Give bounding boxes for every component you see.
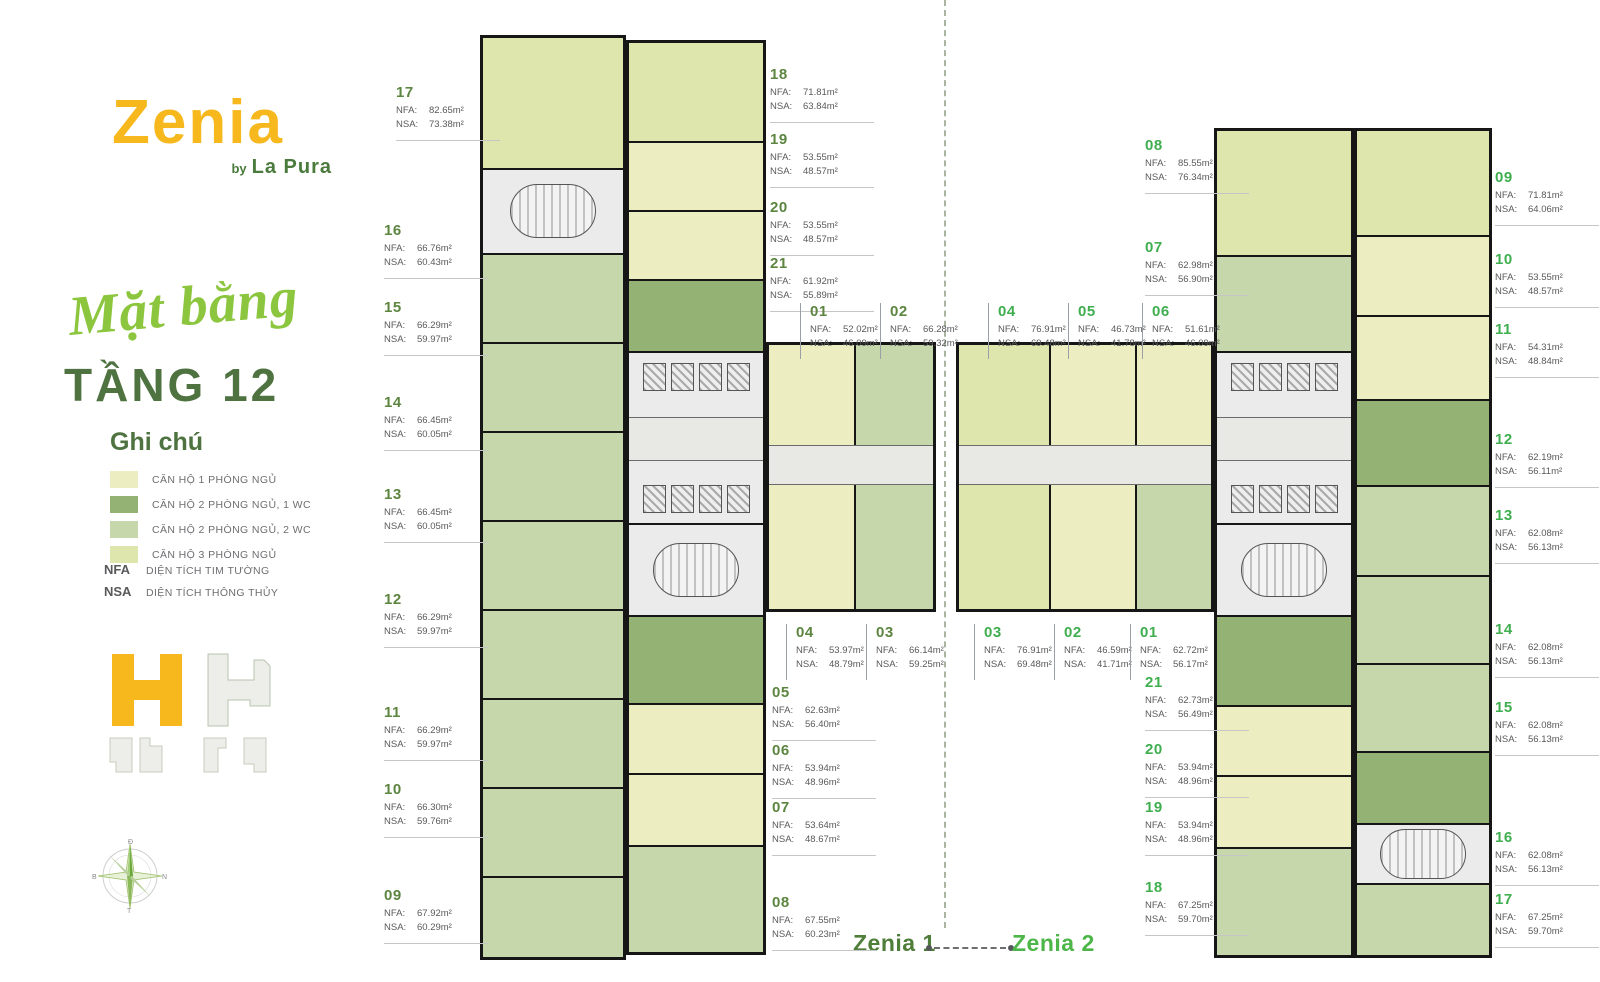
unit-nfa-row: NFA:66.76m² <box>384 242 488 256</box>
unit-nfa-row: NFA:62.72m² <box>1140 644 1224 658</box>
plan-unit-z1-14 <box>483 431 623 520</box>
zenia1-corridor <box>769 445 933 485</box>
unit-nsa-row: NSA:60.05m² <box>384 520 488 534</box>
zenia1-outer-core <box>483 168 623 253</box>
unit-number: 12 <box>1495 431 1599 448</box>
unit-number: 07 <box>1145 239 1249 256</box>
plan-unit-z1-16 <box>483 253 623 342</box>
unit-nsa-row: NSA:59.97m² <box>384 333 488 347</box>
unit-label-z2-13: 13NFA:62.08m²NSA:56.13m² <box>1495 507 1599 564</box>
unit-label-z1-19: 19NFA:53.55m²NSA:48.57m² <box>770 131 874 188</box>
svg-text:Đ: Đ <box>128 839 133 846</box>
unit-nfa-row: NFA:66.45m² <box>384 506 488 520</box>
plan-unit-z2-09 <box>1357 131 1489 235</box>
unit-number: 06 <box>1152 303 1236 320</box>
unit-label-z1-13: 13NFA:66.45m²NSA:60.05m² <box>384 486 488 543</box>
unit-nfa-row: NFA:66.29m² <box>384 611 488 625</box>
unit-label-z1-20: 20NFA:53.55m²NSA:48.57m² <box>770 199 874 256</box>
abbreviation-key: NFA DIỆN TÍCH TIM TƯỜNG NSA DIỆN TÍCH TH… <box>104 562 278 606</box>
plan-unit-z1-01 <box>769 345 854 445</box>
lift-icon <box>1315 363 1338 391</box>
plan-unit-z2-02 <box>1049 485 1135 609</box>
legend-item-1pn: CĂN HỘ 1 PHÒNG NGỦ <box>110 471 380 488</box>
zenia2-corridor <box>959 445 1211 485</box>
brand-name: Zenia <box>112 92 332 154</box>
plan-unit-z2-03 <box>959 485 1049 609</box>
unit-nfa-row: NFA:71.81m² <box>1495 189 1599 203</box>
plan-unit-z1-11 <box>483 698 623 787</box>
unit-number: 05 <box>772 684 876 701</box>
unit-number: 11 <box>384 704 488 721</box>
unit-nsa-row: NSA:56.40m² <box>772 718 876 732</box>
lift-icon <box>643 485 666 513</box>
unit-number: 06 <box>772 742 876 759</box>
unit-nsa-row: NSA:48.96m² <box>1145 833 1249 847</box>
site-block-b <box>204 738 266 772</box>
zenia2-stair-core <box>1217 523 1351 615</box>
unit-nfa-row: NFA:53.55m² <box>770 219 874 233</box>
core-corridor <box>1217 417 1351 461</box>
unit-nsa-row: NSA:59.32m² <box>890 337 974 351</box>
svg-text:B: B <box>92 874 97 881</box>
site-block-a <box>110 738 162 772</box>
plan-unit-z2-05 <box>1049 345 1135 445</box>
unit-nfa-row: NFA:53.64m² <box>772 819 876 833</box>
lift-icon <box>643 363 666 391</box>
core-corridor <box>629 417 763 461</box>
plan-unit-z2-10 <box>1357 235 1489 315</box>
unit-label-z2-16: 16NFA:62.08m²NSA:56.13m² <box>1495 829 1599 886</box>
plan-unit-z1-15 <box>483 342 623 431</box>
unit-nsa-row: NSA:59.76m² <box>384 815 488 829</box>
lift-icon <box>1259 485 1282 513</box>
unit-nsa-row: NSA:55.89m² <box>770 289 874 303</box>
lift-icon <box>671 363 694 391</box>
unit-label-z1-05: 05NFA:62.63m²NSA:56.40m² <box>772 684 876 741</box>
unit-number: 07 <box>772 799 876 816</box>
unit-nsa-row: NSA:56.13m² <box>1495 733 1599 747</box>
zenia1-connector <box>766 342 936 612</box>
unit-label-z1-12: 12NFA:66.29m²NSA:59.97m² <box>384 591 488 648</box>
unit-label-z2-10: 10NFA:53.55m²NSA:48.57m² <box>1495 251 1599 308</box>
site-keyplan-graphic <box>104 650 294 780</box>
unit-nsa-row: NSA:56.13m² <box>1495 863 1599 877</box>
tower-h-outline <box>208 654 270 726</box>
unit-number: 15 <box>1495 699 1599 716</box>
unit-number: 17 <box>1495 891 1599 908</box>
zenia1-lift-core <box>629 351 763 523</box>
plan-unit-z2-12 <box>1357 399 1489 485</box>
unit-nfa-row: NFA:62.63m² <box>772 704 876 718</box>
unit-number: 20 <box>770 199 874 216</box>
zenia1-outer-wing <box>480 35 626 960</box>
unit-number: 18 <box>1145 879 1249 896</box>
unit-label-z2-18: 18NFA:67.25m²NSA:59.70m² <box>1145 879 1249 936</box>
plan-unit-z1-07 <box>629 773 763 845</box>
unit-number: 09 <box>384 887 488 904</box>
zenia1-inner-wing <box>626 40 766 955</box>
unit-nsa-row: NSA:48.57m² <box>770 233 874 247</box>
unit-nsa-row: NSA:46.09m² <box>1152 337 1236 351</box>
plan-unit-z2-14 <box>1357 575 1489 663</box>
unit-nfa-row: NFA:66.14m² <box>876 644 960 658</box>
unit-nsa-row: NSA:48.84m² <box>1495 355 1599 369</box>
unit-nsa-row: NSA:56.17m² <box>1140 658 1224 672</box>
unit-number: 11 <box>1495 321 1599 338</box>
unit-label-z2-06: 06NFA:51.61m²NSA:46.09m² <box>1142 303 1236 359</box>
unit-label-z1-14: 14NFA:66.45m²NSA:60.05m² <box>384 394 488 451</box>
unit-nfa-row: NFA:71.81m² <box>770 86 874 100</box>
plan-unit-z1-05 <box>629 615 763 703</box>
unit-number: 14 <box>384 394 488 411</box>
unit-number: 10 <box>384 781 488 798</box>
unit-nsa-row: NSA:56.13m² <box>1495 541 1599 555</box>
unit-number: 03 <box>876 624 960 641</box>
unit-number: 18 <box>770 66 874 83</box>
brand-logo: Zenia byLa Pura <box>112 92 332 179</box>
unit-number: 01 <box>1140 624 1224 641</box>
unit-label-z2-20: 20NFA:53.94m²NSA:48.96m² <box>1145 741 1249 798</box>
lift-bank <box>629 363 763 391</box>
unit-nfa-row: NFA:53.55m² <box>770 151 874 165</box>
unit-nfa-row: NFA:67.55m² <box>772 914 876 928</box>
stairs <box>1380 829 1466 879</box>
lift-icon <box>1231 485 1254 513</box>
unit-label-z2-12: 12NFA:62.19m²NSA:56.11m² <box>1495 431 1599 488</box>
unit-nfa-row: NFA:66.29m² <box>384 319 488 333</box>
unit-nsa-row: NSA:60.29m² <box>384 921 488 935</box>
unit-nsa-row: NSA:48.96m² <box>772 776 876 790</box>
unit-nfa-row: NFA:62.08m² <box>1495 641 1599 655</box>
legend-title: Ghi chú <box>110 428 380 457</box>
plan-unit-z1-03 <box>854 485 933 609</box>
plan-unit-z1-06 <box>629 703 763 773</box>
unit-number: 15 <box>384 299 488 316</box>
zenia2-connector <box>956 342 1214 612</box>
unit-label-z2-21: 21NFA:62.73m²NSA:56.49m² <box>1145 674 1249 731</box>
unit-nfa-row: NFA:53.55m² <box>1495 271 1599 285</box>
abbr-nfa: NFA DIỆN TÍCH TIM TƯỜNG <box>104 562 278 577</box>
plan-unit-z2-11 <box>1357 315 1489 399</box>
unit-nfa-row: NFA:66.30m² <box>384 801 488 815</box>
unit-label-z1-11: 11NFA:66.29m²NSA:59.97m² <box>384 704 488 761</box>
legend-swatch-2pn1wc <box>110 496 138 513</box>
plan-unit-z1-02 <box>854 345 933 445</box>
unit-label-z1-06: 06NFA:53.94m²NSA:48.96m² <box>772 742 876 799</box>
unit-number: 10 <box>1495 251 1599 268</box>
unit-label-z1-09: 09NFA:67.92m²NSA:60.29m² <box>384 887 488 944</box>
lift-bank <box>1217 485 1351 513</box>
lift-icon <box>727 363 750 391</box>
unit-number: 13 <box>1495 507 1599 524</box>
svg-text:T: T <box>127 908 132 914</box>
unit-label-z2-01: 01NFA:62.72m²NSA:56.17m² <box>1130 624 1224 680</box>
lift-icon <box>1287 485 1310 513</box>
lift-icon <box>1315 485 1338 513</box>
unit-nfa-row: NFA:54.31m² <box>1495 341 1599 355</box>
unit-label-z1-16: 16NFA:66.76m²NSA:60.43m² <box>384 222 488 279</box>
unit-label-z1-07: 07NFA:53.64m²NSA:48.67m² <box>772 799 876 856</box>
footer-tower-right-label: Zenia 2 <box>1012 930 1095 957</box>
plan-unit-z2-01 <box>1135 485 1211 609</box>
unit-nfa-row: NFA:67.25m² <box>1495 911 1599 925</box>
plan-unit-z2-17 <box>1357 883 1489 955</box>
unit-nsa-row: NSA:59.97m² <box>384 738 488 752</box>
unit-number: 14 <box>1495 621 1599 638</box>
zenia2-outer-core <box>1357 823 1489 883</box>
unit-nsa-row: NSA:56.13m² <box>1495 655 1599 669</box>
unit-number: 16 <box>1495 829 1599 846</box>
unit-number: 08 <box>1145 137 1249 154</box>
floorplan-page: Zenia byLa Pura Mặt bằng TẦNG 12 Ghi chú… <box>0 0 1600 982</box>
unit-label-z2-08: 08NFA:85.55m²NSA:76.34m² <box>1145 137 1249 194</box>
legend-swatch-2pn2wc <box>110 521 138 538</box>
unit-label-z1-03: 03NFA:66.14m²NSA:59.25m² <box>866 624 960 680</box>
unit-number: 09 <box>1495 169 1599 186</box>
plan-unit-z1-10 <box>483 787 623 876</box>
plan-unit-z1-19 <box>629 141 763 210</box>
unit-nfa-row: NFA:67.25m² <box>1145 899 1249 913</box>
lift-icon <box>699 363 722 391</box>
plan-unit-z1-18 <box>629 43 763 141</box>
legend-swatch-1pn <box>110 471 138 488</box>
unit-label-z2-11: 11NFA:54.31m²NSA:48.84m² <box>1495 321 1599 378</box>
lift-bank <box>1217 363 1351 391</box>
lift-icon <box>671 485 694 513</box>
unit-label-z1-15: 15NFA:66.29m²NSA:59.97m² <box>384 299 488 356</box>
unit-nsa-row: NSA:64.06m² <box>1495 203 1599 217</box>
unit-label-z1-18: 18NFA:71.81m²NSA:63.84m² <box>770 66 874 123</box>
unit-nsa-row: NSA:60.23m² <box>772 928 876 942</box>
unit-label-z2-14: 14NFA:62.08m²NSA:56.13m² <box>1495 621 1599 678</box>
unit-label-z1-10: 10NFA:66.30m²NSA:59.76m² <box>384 781 488 838</box>
tower-h-highlighted <box>112 654 182 726</box>
plan-unit-z2-15 <box>1357 663 1489 751</box>
unit-label-z2-19: 19NFA:53.94m²NSA:48.96m² <box>1145 799 1249 856</box>
unit-nfa-row: NFA:62.08m² <box>1495 719 1599 733</box>
plan-unit-z1-09 <box>483 876 623 957</box>
unit-nsa-row: NSA:59.25m² <box>876 658 960 672</box>
footer-divider-dash <box>934 947 1006 949</box>
plan-unit-z2-13 <box>1357 485 1489 575</box>
unit-nsa-row: NSA:60.05m² <box>384 428 488 442</box>
legend: Ghi chú CĂN HỘ 1 PHÒNG NGỦ CĂN HỘ 2 PHÒN… <box>110 428 380 571</box>
unit-nfa-row: NFA:53.94m² <box>1145 819 1249 833</box>
unit-nfa-row: NFA:66.45m² <box>384 414 488 428</box>
unit-nfa-row: NFA:66.29m² <box>384 724 488 738</box>
brand-byline: byLa Pura <box>112 156 332 179</box>
zenia2-lift-core <box>1217 351 1351 523</box>
unit-nsa-row: NSA:48.57m² <box>1495 285 1599 299</box>
stairs <box>653 543 739 597</box>
compass: Đ N T B <box>92 838 168 919</box>
unit-nfa-row: NFA:62.73m² <box>1145 694 1249 708</box>
plan-unit-z1-21 <box>629 279 763 351</box>
unit-nfa-row: NFA:82.65m² <box>396 104 500 118</box>
lift-icon <box>699 485 722 513</box>
abbr-nsa: NSA DIỆN TÍCH THÔNG THỦY <box>104 584 278 599</box>
stairs <box>510 184 596 238</box>
unit-nfa-row: NFA:61.92m² <box>770 275 874 289</box>
zenia2-outer-wing <box>1354 128 1492 958</box>
page-title-floor: TẦNG 12 <box>64 358 279 412</box>
unit-nfa-row: NFA:67.92m² <box>384 907 488 921</box>
unit-number: 21 <box>770 255 874 272</box>
page-title-script: Mặt bằng <box>66 259 370 349</box>
unit-nsa-row: NSA:59.70m² <box>1145 913 1249 927</box>
unit-number: 19 <box>770 131 874 148</box>
unit-label-z2-07: 07NFA:62.98m²NSA:56.90m² <box>1145 239 1249 296</box>
unit-nsa-row: NSA:60.43m² <box>384 256 488 270</box>
unit-nfa-row: NFA:53.94m² <box>1145 761 1249 775</box>
legend-item-3pn: CĂN HỘ 3 PHÒNG NGỦ <box>110 546 380 563</box>
unit-label-z1-17: 17NFA:82.65m²NSA:73.38m² <box>396 84 500 141</box>
lift-bank <box>629 485 763 513</box>
unit-nsa-row: NSA:59.97m² <box>384 625 488 639</box>
unit-nsa-row: NSA:56.49m² <box>1145 708 1249 722</box>
plan-unit-z1-08 <box>629 845 763 952</box>
plan-unit-z1-04 <box>769 485 854 609</box>
unit-nsa-row: NSA:56.90m² <box>1145 273 1249 287</box>
svg-text:N: N <box>162 874 167 881</box>
tower-divider-line <box>944 0 946 928</box>
unit-number: 19 <box>1145 799 1249 816</box>
unit-nsa-row: NSA:48.96m² <box>1145 775 1249 789</box>
unit-nfa-row: NFA:66.28m² <box>890 323 974 337</box>
stairs <box>1241 543 1327 597</box>
unit-nsa-row: NSA:56.11m² <box>1495 465 1599 479</box>
unit-number: 12 <box>384 591 488 608</box>
unit-nsa-row: NSA:73.38m² <box>396 118 500 132</box>
unit-nfa-row: NFA:62.19m² <box>1495 451 1599 465</box>
unit-nsa-row: NSA:48.57m² <box>770 165 874 179</box>
unit-label-z1-08: 08NFA:67.55m²NSA:60.23m² <box>772 894 876 951</box>
lift-icon <box>1259 363 1282 391</box>
legend-item-2pn1wc: CĂN HỘ 2 PHÒNG NGỦ, 1 WC <box>110 496 380 513</box>
unit-nsa-row: NSA:48.67m² <box>772 833 876 847</box>
unit-nfa-row: NFA:51.61m² <box>1152 323 1236 337</box>
legend-swatch-3pn <box>110 546 138 563</box>
unit-nsa-row: NSA:59.70m² <box>1495 925 1599 939</box>
plan-unit-z2-06 <box>1135 345 1211 445</box>
unit-number: 20 <box>1145 741 1249 758</box>
unit-nsa-row: NSA:76.34m² <box>1145 171 1249 185</box>
unit-nfa-row: NFA:53.94m² <box>772 762 876 776</box>
lift-icon <box>1231 363 1254 391</box>
plan-unit-z1-20 <box>629 210 763 279</box>
unit-nfa-row: NFA:62.98m² <box>1145 259 1249 273</box>
plan-unit-z1-17 <box>483 38 623 168</box>
compass-rose-icon: Đ N T B <box>92 838 168 914</box>
site-keyplan <box>104 650 294 785</box>
plan-unit-z2-04 <box>959 345 1049 445</box>
unit-label-z2-15: 15NFA:62.08m²NSA:56.13m² <box>1495 699 1599 756</box>
unit-nfa-row: NFA:62.08m² <box>1495 527 1599 541</box>
unit-number: 17 <box>396 84 500 101</box>
zenia1-stair-core <box>629 523 763 615</box>
plan-unit-z1-12 <box>483 609 623 698</box>
unit-label-z2-17: 17NFA:67.25m²NSA:59.70m² <box>1495 891 1599 948</box>
unit-nsa-row: NSA:63.84m² <box>770 100 874 114</box>
plan-unit-z1-13 <box>483 520 623 609</box>
unit-number: 16 <box>384 222 488 239</box>
plan-unit-z2-16 <box>1357 751 1489 823</box>
lift-icon <box>1287 363 1310 391</box>
unit-number: 13 <box>384 486 488 503</box>
lift-icon <box>727 485 750 513</box>
unit-nfa-row: NFA:85.55m² <box>1145 157 1249 171</box>
unit-label-z1-02: 02NFA:66.28m²NSA:59.32m² <box>880 303 974 359</box>
unit-label-z2-09: 09NFA:71.81m²NSA:64.06m² <box>1495 169 1599 226</box>
unit-number: 08 <box>772 894 876 911</box>
legend-item-2pn2wc: CĂN HỘ 2 PHÒNG NGỦ, 2 WC <box>110 521 380 538</box>
unit-number: 21 <box>1145 674 1249 691</box>
unit-number: 02 <box>890 303 974 320</box>
unit-nfa-row: NFA:62.08m² <box>1495 849 1599 863</box>
